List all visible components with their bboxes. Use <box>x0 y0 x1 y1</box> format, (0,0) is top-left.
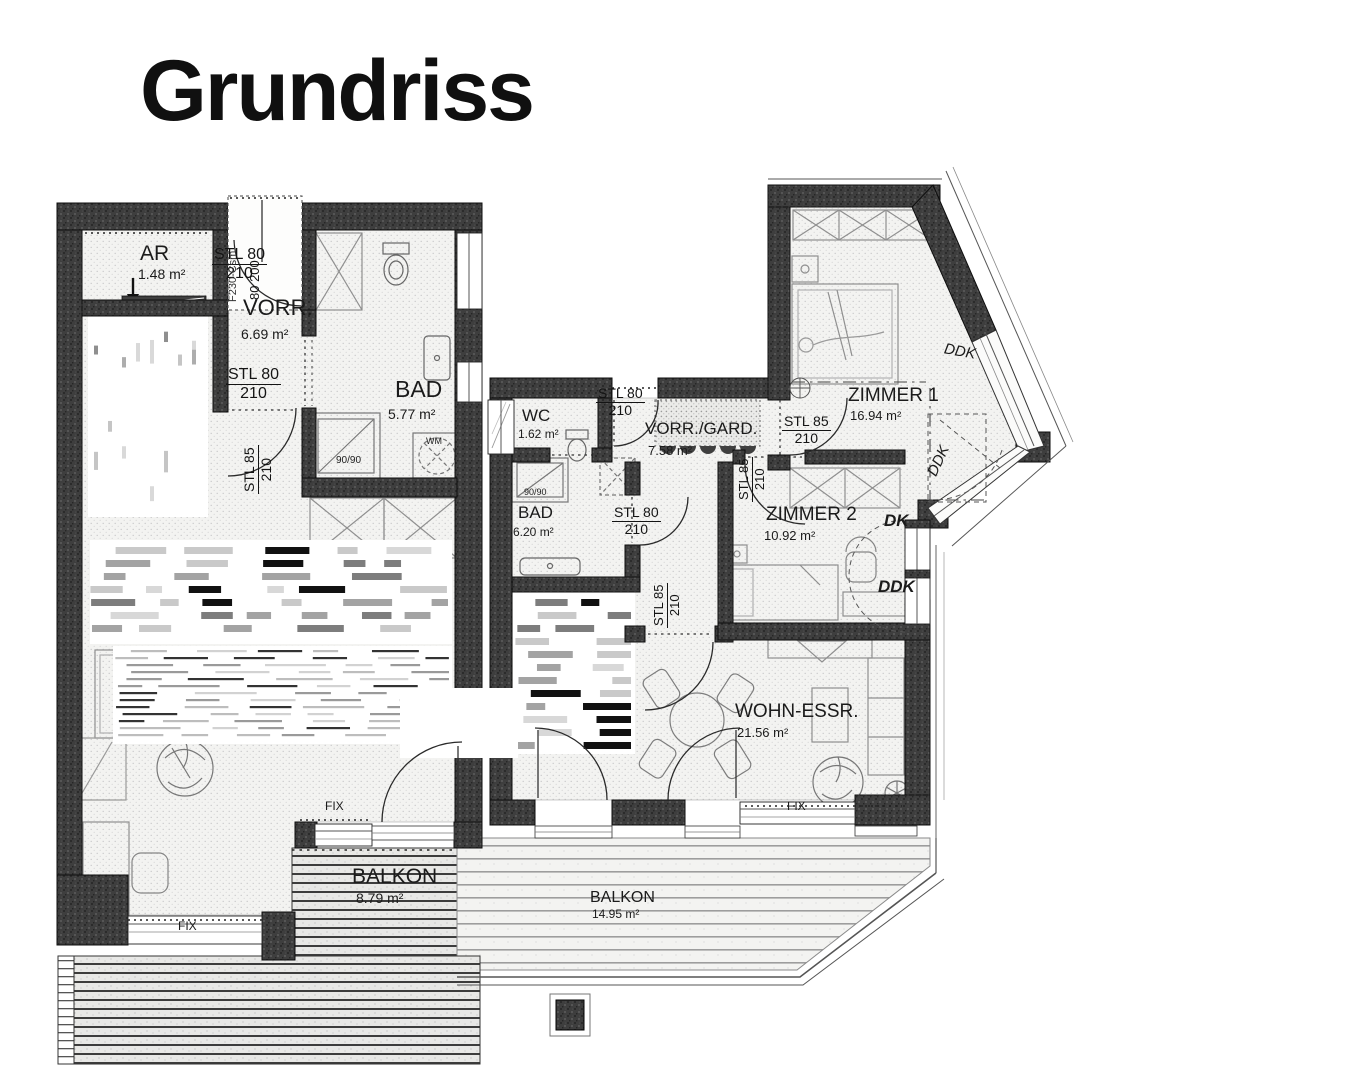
room-label-zimmer2: ZIMMER 2 <box>766 505 857 524</box>
door-spec-height: 210 <box>612 522 661 538</box>
door-spec-entry-leaf: 80 200 <box>248 260 263 300</box>
window-label-fix: FIX <box>178 920 197 932</box>
room-area-wohn: 21.56 m² <box>737 726 788 739</box>
door-code-label: F230-Csm <box>228 251 239 302</box>
door-spec-height: 210 <box>259 445 275 494</box>
door-spec-living-a: STL 85 210 <box>242 445 274 494</box>
door-spec-bad-b: STL 80 210 <box>612 505 661 537</box>
door-leaf-size: 80 200 <box>248 260 263 300</box>
door-spec-type: STL 85 <box>652 583 668 628</box>
door-spec-height: 210 <box>753 457 768 502</box>
window-label-dk: DK <box>884 512 909 529</box>
room-area-bad-a: 5.77 m² <box>388 407 435 421</box>
room-area-zimmer1: 16.94 m² <box>850 409 901 422</box>
room-label-balkon-b: BALKON <box>590 890 655 906</box>
washer-label: WM <box>426 437 442 446</box>
door-spec-type: STL 80 <box>226 366 281 385</box>
door-spec-zimmer1: STL 85 210 <box>782 414 831 446</box>
door-spec-wc: STL 80 210 <box>596 386 645 418</box>
room-area-balkon-a: 8.79 m² <box>356 891 403 905</box>
door-spec-type: STL 85 <box>737 457 753 502</box>
floor-plan-drawing <box>0 0 1350 1080</box>
door-spec-height: 210 <box>668 583 683 628</box>
room-area-vorr-a: 6.69 m² <box>241 327 288 341</box>
window-label-fix: FIX <box>325 800 344 812</box>
door-spec-type: STL 80 <box>596 386 645 403</box>
door-spec-vorr-a: STL 80 210 <box>226 366 281 403</box>
shower-size-label: 90/90 <box>336 456 361 466</box>
room-area-vorr-b: 7.58 m² <box>648 444 692 457</box>
room-label-bad-b: BAD <box>518 504 553 521</box>
room-label-vorr-a: VORR. <box>243 297 313 319</box>
room-area-ar: 1.48 m² <box>138 267 185 281</box>
door-spec-height: 210 <box>226 385 281 403</box>
door-spec-wohn: STL 85 210 <box>652 583 682 628</box>
floor-plan-page: Grundriss <box>0 0 1350 1080</box>
shower-size-label: 90/90 <box>524 488 547 497</box>
room-label-ar: AR <box>140 243 169 264</box>
room-label-bad-a: BAD <box>395 378 442 401</box>
door-spec-height: 210 <box>782 431 831 447</box>
room-area-balkon-b: 14.95 m² <box>592 908 639 920</box>
window-label-fix: FIX <box>787 800 806 812</box>
door-spec-type: STL 85 <box>242 445 259 494</box>
room-label-vorr-b: VORR./GARD. <box>645 420 757 437</box>
window-label-ddk: DDK <box>878 578 915 595</box>
door-spec-zimmer2: STL 85 210 <box>737 457 767 502</box>
door-spec-type: STL 85 <box>782 414 831 431</box>
room-area-zimmer2: 10.92 m² <box>764 529 815 542</box>
room-area-wc: 1.62 m² <box>518 428 559 440</box>
redacted-area <box>400 688 518 758</box>
room-label-wohn: WOHN-ESSR. <box>735 702 859 721</box>
room-label-wc: WC <box>522 407 550 424</box>
room-area-bad-b: 6.20 m² <box>513 526 554 538</box>
door-spec-height: 210 <box>596 403 645 419</box>
room-label-balkon-a: BALKON <box>352 866 437 887</box>
door-spec-type: STL 80 <box>612 505 661 522</box>
room-label-zimmer1: ZIMMER 1 <box>848 386 939 405</box>
